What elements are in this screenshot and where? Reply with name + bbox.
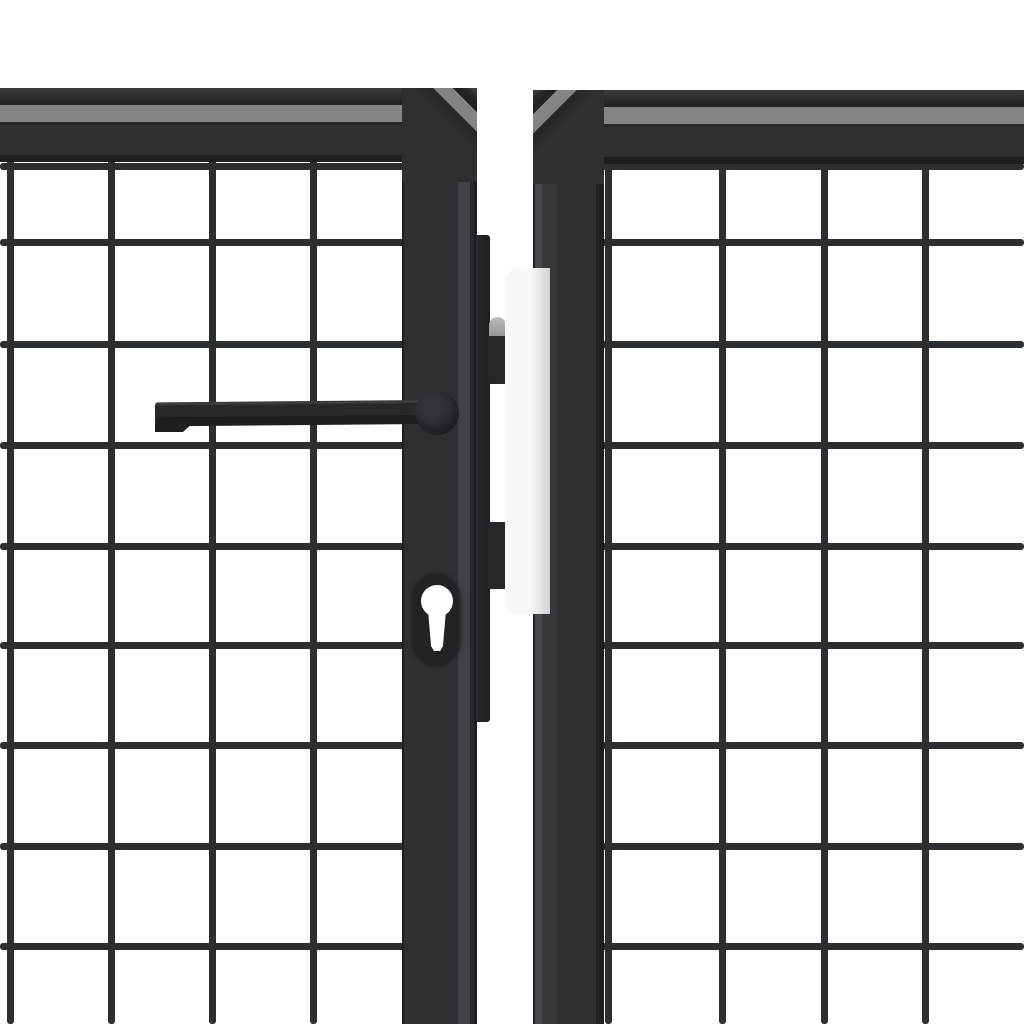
gate-handle-bar bbox=[155, 400, 429, 426]
mesh-wire-vertical bbox=[209, 150, 216, 1024]
mesh-wire-horizontal bbox=[596, 442, 1024, 449]
mesh-wire-horizontal bbox=[596, 943, 1024, 950]
mesh-wire-horizontal bbox=[0, 843, 410, 850]
right-leaf-miter-corner bbox=[533, 90, 604, 184]
mesh-wire-horizontal bbox=[0, 642, 410, 649]
mesh-wire-vertical bbox=[7, 150, 14, 1024]
mesh-wire-horizontal bbox=[0, 543, 410, 550]
strike-plate bbox=[505, 268, 550, 614]
mesh-wire-vertical bbox=[310, 150, 317, 1024]
mesh-wire-vertical bbox=[719, 150, 726, 1024]
mesh-wire-horizontal bbox=[0, 239, 410, 246]
gate-handle-grip-end bbox=[155, 421, 195, 432]
product-scene bbox=[0, 0, 1024, 1024]
mesh-wire-horizontal bbox=[596, 543, 1024, 550]
lock-box bbox=[476, 235, 490, 722]
mesh-wire-horizontal bbox=[0, 341, 410, 348]
mesh-wire-horizontal bbox=[596, 642, 1024, 649]
mesh-wire-horizontal bbox=[596, 341, 1024, 348]
mesh-wire-vertical bbox=[605, 150, 612, 1024]
rail-front-face bbox=[533, 127, 1024, 157]
mesh-wire-vertical bbox=[821, 150, 828, 1024]
rail-top-highlight bbox=[533, 107, 1024, 124]
mesh-wire-horizontal bbox=[0, 742, 410, 749]
left-leaf-miter-corner bbox=[402, 88, 477, 182]
latch-bolt bbox=[488, 336, 506, 384]
mesh-wire-horizontal bbox=[0, 163, 410, 170]
mesh-wire-vertical bbox=[922, 150, 929, 1024]
mesh-wire-horizontal bbox=[596, 239, 1024, 246]
rail-inner-edge bbox=[533, 157, 1024, 164]
mesh-wire-horizontal bbox=[596, 163, 1024, 170]
right-leaf-top-rail bbox=[533, 90, 1024, 164]
dead-bolt bbox=[488, 522, 506, 589]
mesh-wire-vertical bbox=[108, 150, 115, 1024]
mesh-wire-horizontal bbox=[0, 943, 410, 950]
rail-top-edge bbox=[533, 90, 1024, 107]
mesh-wire-horizontal bbox=[0, 442, 410, 449]
gate-handle-rosette bbox=[415, 391, 459, 435]
mesh-wire-horizontal bbox=[596, 742, 1024, 749]
mesh-wire-horizontal bbox=[596, 843, 1024, 850]
